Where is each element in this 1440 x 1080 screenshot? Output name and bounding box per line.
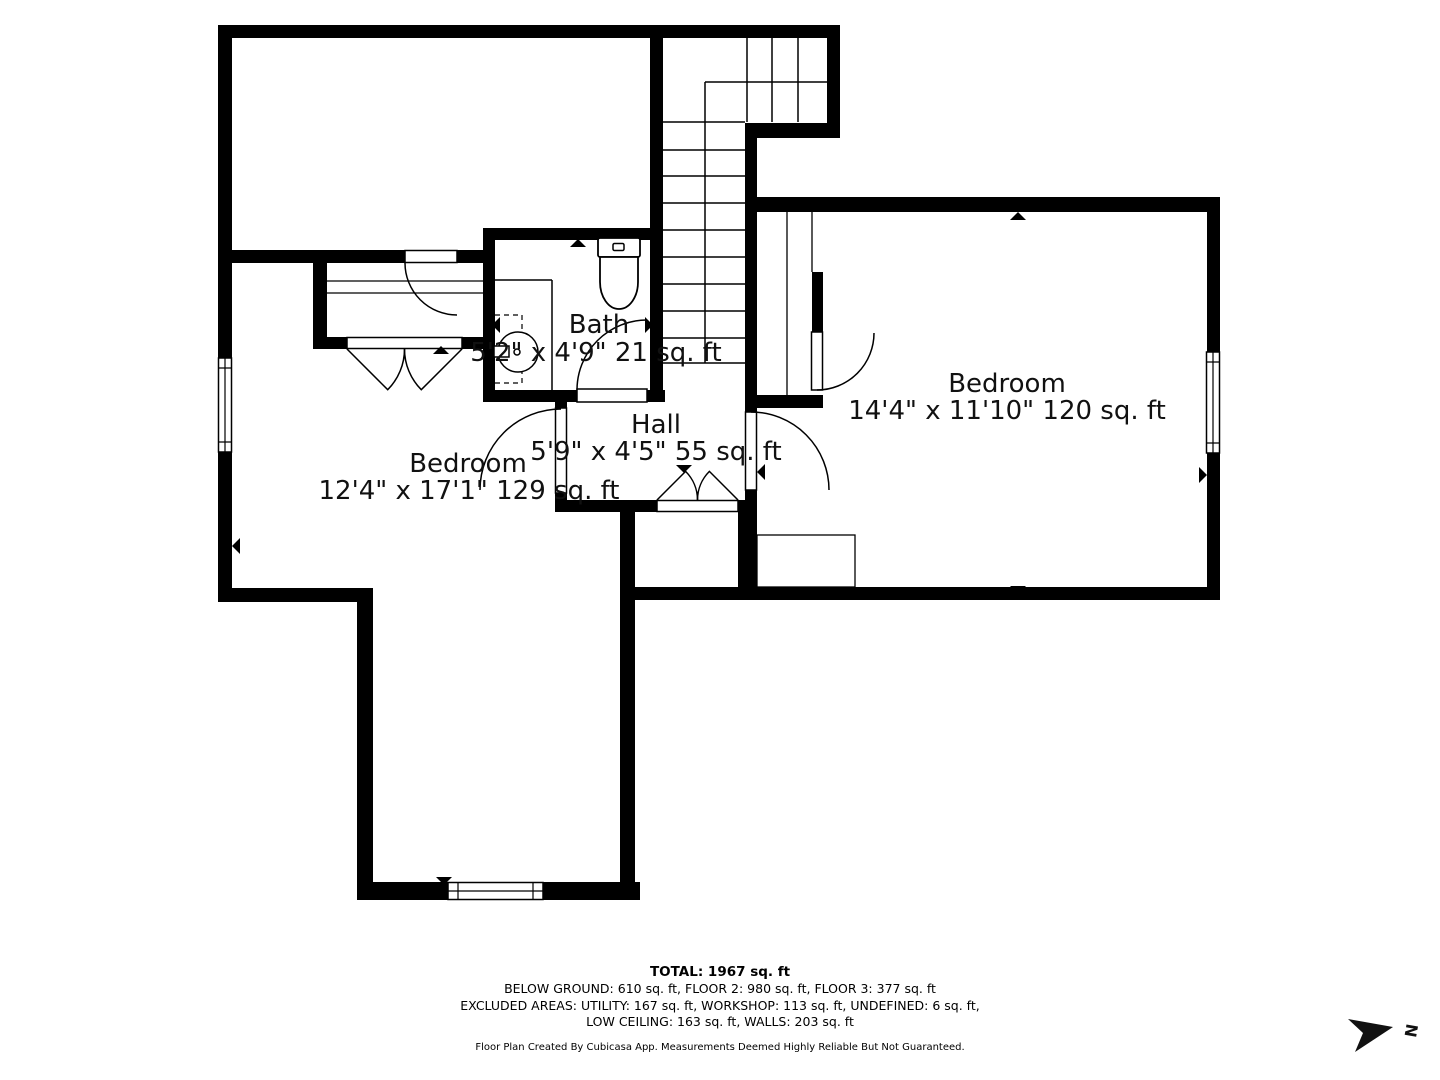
low-ceiling-box — [757, 535, 855, 587]
wall-room-bottom-a — [218, 250, 405, 263]
double-door-hall-left — [657, 471, 698, 500]
footer-disclaimer: Floor Plan Created By Cubicasa App. Meas… — [0, 1041, 1440, 1055]
wall-bedroom1-bottom — [218, 588, 373, 602]
door-leaf-room-closet — [405, 251, 457, 263]
wall-bedroom2-bottom — [620, 587, 1220, 600]
wall-bedroom2-top — [745, 197, 1220, 212]
arc-room-closet — [405, 263, 457, 315]
wall-closet2-right — [812, 272, 823, 332]
wall-left — [218, 25, 232, 602]
arc-closet2 — [817, 333, 874, 390]
room-label-hall: Hall — [631, 410, 681, 440]
door-leaf-closet2 — [812, 332, 823, 390]
floor-plan-canvas: Bath 5'2" x 4'9" 21 sq. ft Hall 5'9" x 4… — [0, 0, 1440, 1080]
window-left-wall — [219, 358, 232, 452]
wall-corridor-left — [357, 588, 373, 900]
footer-areas-line3: LOW CEILING: 163 sq. ft, WALLS: 203 sq. … — [0, 1014, 1440, 1031]
marker-up-bedroom2 — [1010, 212, 1026, 220]
footer: TOTAL: 1967 sq. ft BELOW GROUND: 610 sq.… — [0, 963, 1440, 1055]
wall-closet2-bottom — [757, 395, 823, 408]
wall-stair-bottom — [745, 123, 840, 138]
double-door-closet-right — [404, 349, 462, 390]
wall-stair-right — [827, 25, 840, 138]
footer-areas-line2: EXCLUDED AREAS: UTILITY: 167 sq. ft, WOR… — [0, 998, 1440, 1015]
door-opening-hall-closet — [657, 501, 738, 512]
wall-bath-bottom-b — [647, 390, 665, 402]
marker-left-bedroom1 — [232, 538, 240, 554]
toilet-icon — [598, 238, 640, 309]
window-corridor-bottom — [448, 883, 543, 900]
footer-areas-line1: BELOW GROUND: 610 sq. ft, FLOOR 2: 980 s… — [0, 981, 1440, 998]
wall-hall-left-a — [555, 398, 567, 408]
floor-plan-page: Bath 5'2" x 4'9" 21 sq. ft Hall 5'9" x 4… — [0, 0, 1440, 1080]
stair-steps-vertical-run — [663, 122, 745, 363]
stair-steps-horizontal-run — [747, 38, 798, 122]
door-leaf-bath — [577, 389, 647, 402]
room-dims-bath: 5'2" x 4'9" 21 sq. ft — [470, 338, 721, 368]
room-label-bedroom2: Bedroom — [948, 369, 1066, 399]
room-dims-hall: 5'9" x 4'5" 55 sq. ft — [530, 437, 781, 467]
wall-bath-left — [483, 240, 495, 402]
wall-corridor-right — [620, 512, 635, 900]
marker-up-bath — [570, 239, 586, 247]
wall-top — [218, 25, 840, 38]
wall-markers — [232, 212, 1207, 885]
room-dims-bedroom1: 12'4" x 17'1" 129 sq. ft — [318, 476, 619, 506]
room-label-bedroom1: Bedroom — [409, 449, 527, 479]
room-dims-bedroom2: 14'4" x 11'10" 120 sq. ft — [848, 396, 1166, 426]
wall-closet-bottom-a — [313, 337, 347, 349]
wall-hall-right-a — [745, 138, 757, 412]
door-opening-closet-bedroom — [347, 338, 462, 349]
marker-right-bedroom2 — [1199, 467, 1207, 483]
wall-hallcloset-right — [738, 512, 757, 587]
wall-hall-bottom-b — [738, 500, 757, 512]
room-label-bath: Bath — [569, 310, 629, 340]
footer-total: TOTAL: 1967 sq. ft — [0, 963, 1440, 981]
closet-shelf-lines — [327, 281, 483, 293]
closet2-slider-lines — [787, 212, 812, 395]
double-door-hall-right — [698, 471, 739, 500]
window-bedroom2-right — [1207, 352, 1220, 453]
double-door-closet-left — [347, 349, 405, 390]
wall-closet-left — [313, 263, 327, 337]
